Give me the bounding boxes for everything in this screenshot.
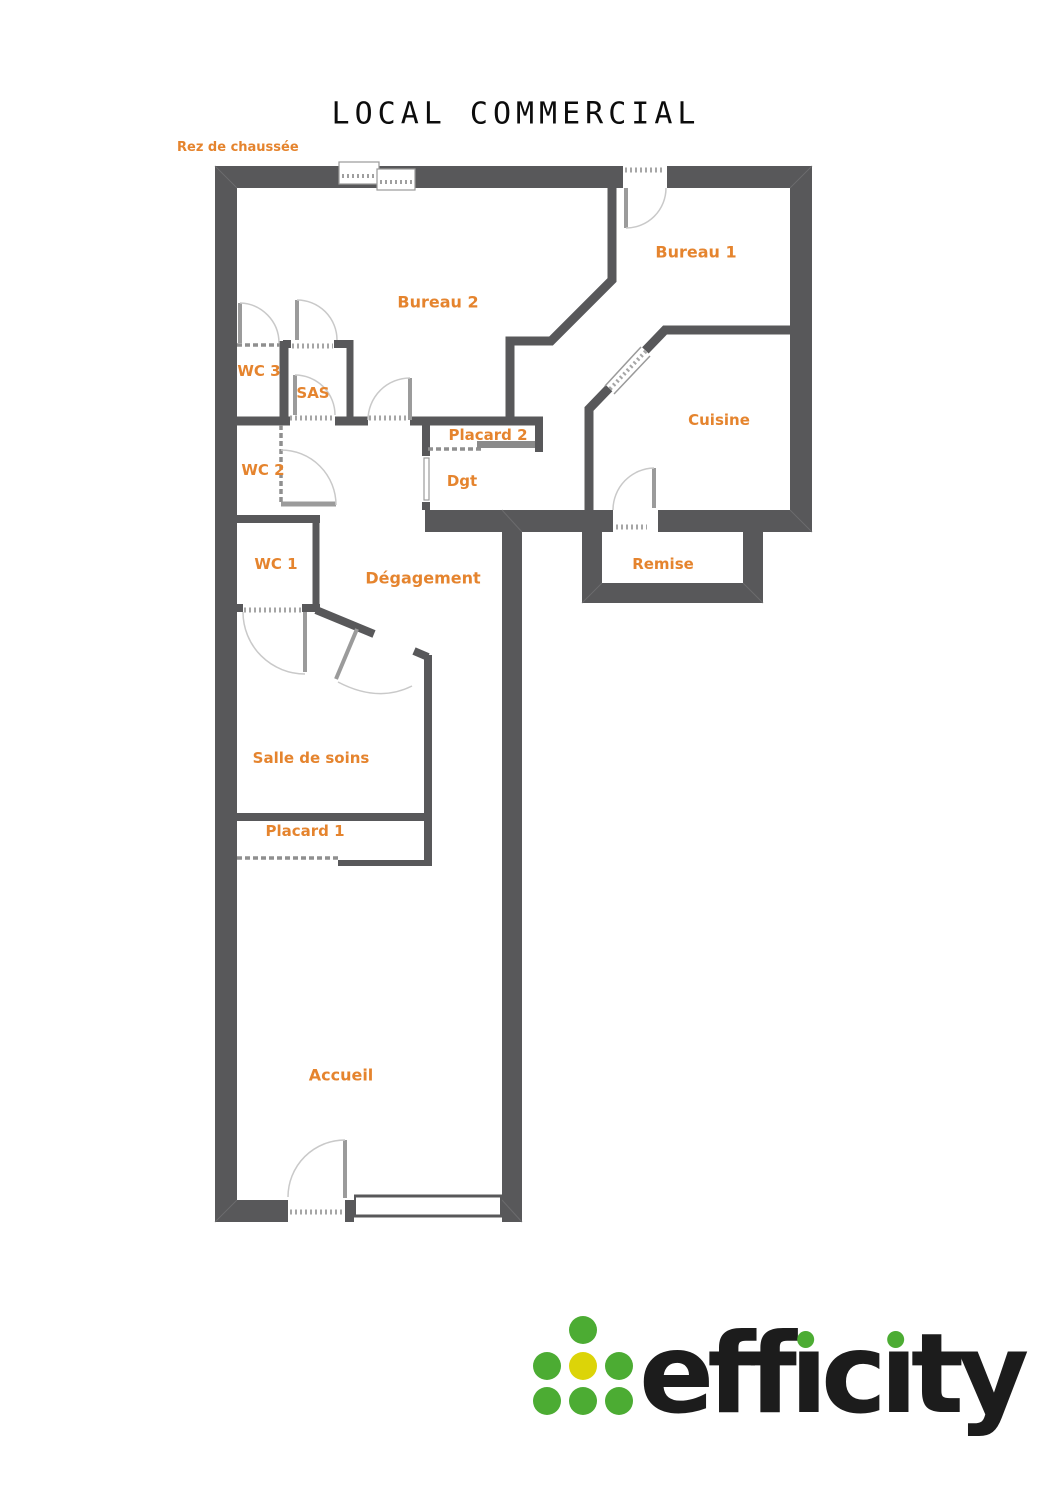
- logo-letter-i-stem: ı: [790, 1310, 821, 1439]
- efficity-logo-text: effıcıty: [639, 1319, 1022, 1430]
- room-label-wc3: WC 3: [237, 362, 280, 380]
- floor-plan-page: { "page": { "title": "LOCAL COMMERCIAL",…: [0, 0, 1053, 1491]
- logo-dot-green: [605, 1352, 633, 1380]
- room-label-sas: SAS: [296, 384, 329, 402]
- window-accueil-bottom: [354, 1192, 502, 1224]
- window-cuisine-diagonal: [605, 347, 650, 394]
- room-label-cuisine: Cuisine: [688, 411, 750, 429]
- room-label-accueil: Accueil: [309, 1066, 374, 1085]
- efficity-logo-dots-icon: [525, 1316, 633, 1415]
- logo-dot-green: [533, 1387, 561, 1415]
- room-label-placard1: Placard 1: [265, 822, 344, 840]
- room-label-salle-de-soins: Salle de soins: [253, 749, 370, 767]
- logo-text-part: ty: [911, 1310, 1022, 1439]
- logo-dot-green: [569, 1387, 597, 1415]
- logo-text-part: c: [821, 1310, 880, 1439]
- logo-i-dot-green: [887, 1331, 904, 1348]
- efficity-logo: effıcıty: [525, 1316, 1025, 1446]
- room-label-dgt: Dgt: [447, 472, 477, 490]
- logo-dot-yellow: [569, 1352, 597, 1380]
- room-label-remise: Remise: [632, 555, 694, 573]
- logo-dot-green: [605, 1387, 633, 1415]
- room-label-bureau1: Bureau 1: [655, 243, 736, 262]
- logo-i-dot-green: [798, 1331, 815, 1348]
- logo-letter-i-stem: ı: [880, 1310, 911, 1439]
- exterior-walls: [215, 166, 812, 1222]
- logo-letter-i: ı: [880, 1319, 911, 1430]
- logo-text-part: eff: [639, 1310, 790, 1439]
- room-label-bureau2: Bureau 2: [397, 293, 478, 312]
- door-sills: [244, 170, 665, 1212]
- logo-letter-i: ı: [790, 1319, 821, 1430]
- room-label-degagement: Dégagement: [365, 569, 480, 588]
- room-label-wc1: WC 1: [254, 555, 297, 573]
- logo-dot-green: [533, 1352, 561, 1380]
- floor-plan-drawing: [0, 0, 1053, 1491]
- doors: [240, 188, 666, 1198]
- room-label-placard2: Placard 2: [448, 426, 527, 444]
- logo-dot-green: [569, 1316, 597, 1344]
- room-label-wc2: WC 2: [241, 461, 284, 479]
